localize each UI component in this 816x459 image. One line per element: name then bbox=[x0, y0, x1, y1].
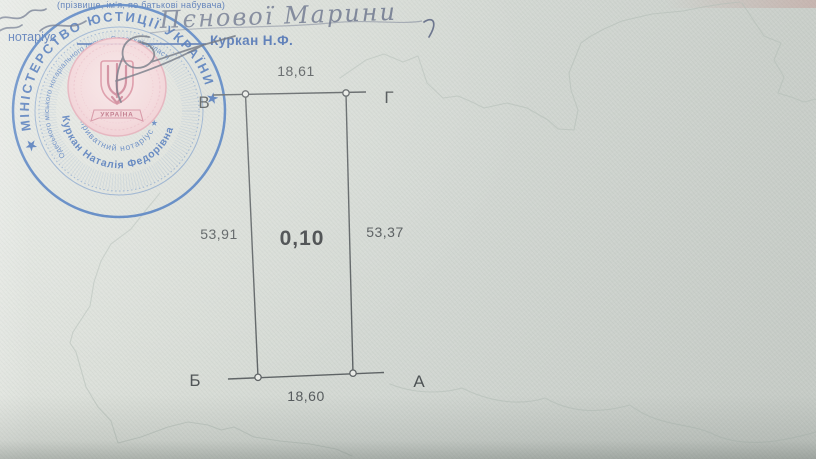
background-contour-lines bbox=[70, 2, 816, 456]
plot-side-left-line bbox=[246, 95, 259, 378]
side-length-bottom: 18,60 bbox=[287, 388, 325, 404]
corner-point-v bbox=[242, 91, 248, 97]
document-artwork: (прізвище, ім'я, по батькові набувача) н… bbox=[0, 0, 816, 459]
handwritten-name: Пєнової Марини bbox=[158, 0, 397, 34]
handwriting-comma-flourish bbox=[424, 20, 434, 37]
corner-label-bottom-right: А bbox=[413, 372, 425, 391]
corner-label-top-right: Г bbox=[384, 88, 393, 107]
plot-side-right-line bbox=[346, 94, 353, 374]
plot-area-value: 0,10 bbox=[280, 227, 325, 250]
contour-right-edge bbox=[742, 3, 816, 102]
notary-name: Куркан Н.Ф. bbox=[210, 33, 293, 48]
side-length-left: 53,91 bbox=[200, 226, 238, 242]
scanned-document-page: (прізвище, ім'я, по батькові набувача) н… bbox=[0, 0, 816, 459]
corner-point-b bbox=[255, 374, 261, 380]
contour-top-right bbox=[340, 2, 740, 130]
corner-label-top-left: В bbox=[198, 93, 209, 112]
corner-point-g bbox=[343, 90, 349, 96]
notary-stamp: ★ МІНІСТЕРСТВО ЮСТИЦІЇ УКРАЇНИ ★ Одесько… bbox=[13, 5, 225, 217]
side-length-top: 18,61 bbox=[277, 63, 315, 79]
emblem-banner-label: УКРАЇНА bbox=[100, 111, 133, 119]
corner-point-a bbox=[350, 370, 356, 376]
corner-label-bottom-left: Б bbox=[189, 371, 200, 390]
plot-side-bottom-line bbox=[228, 373, 384, 380]
contour-bottom-right bbox=[390, 384, 816, 442]
side-length-right: 53,37 bbox=[366, 224, 404, 240]
